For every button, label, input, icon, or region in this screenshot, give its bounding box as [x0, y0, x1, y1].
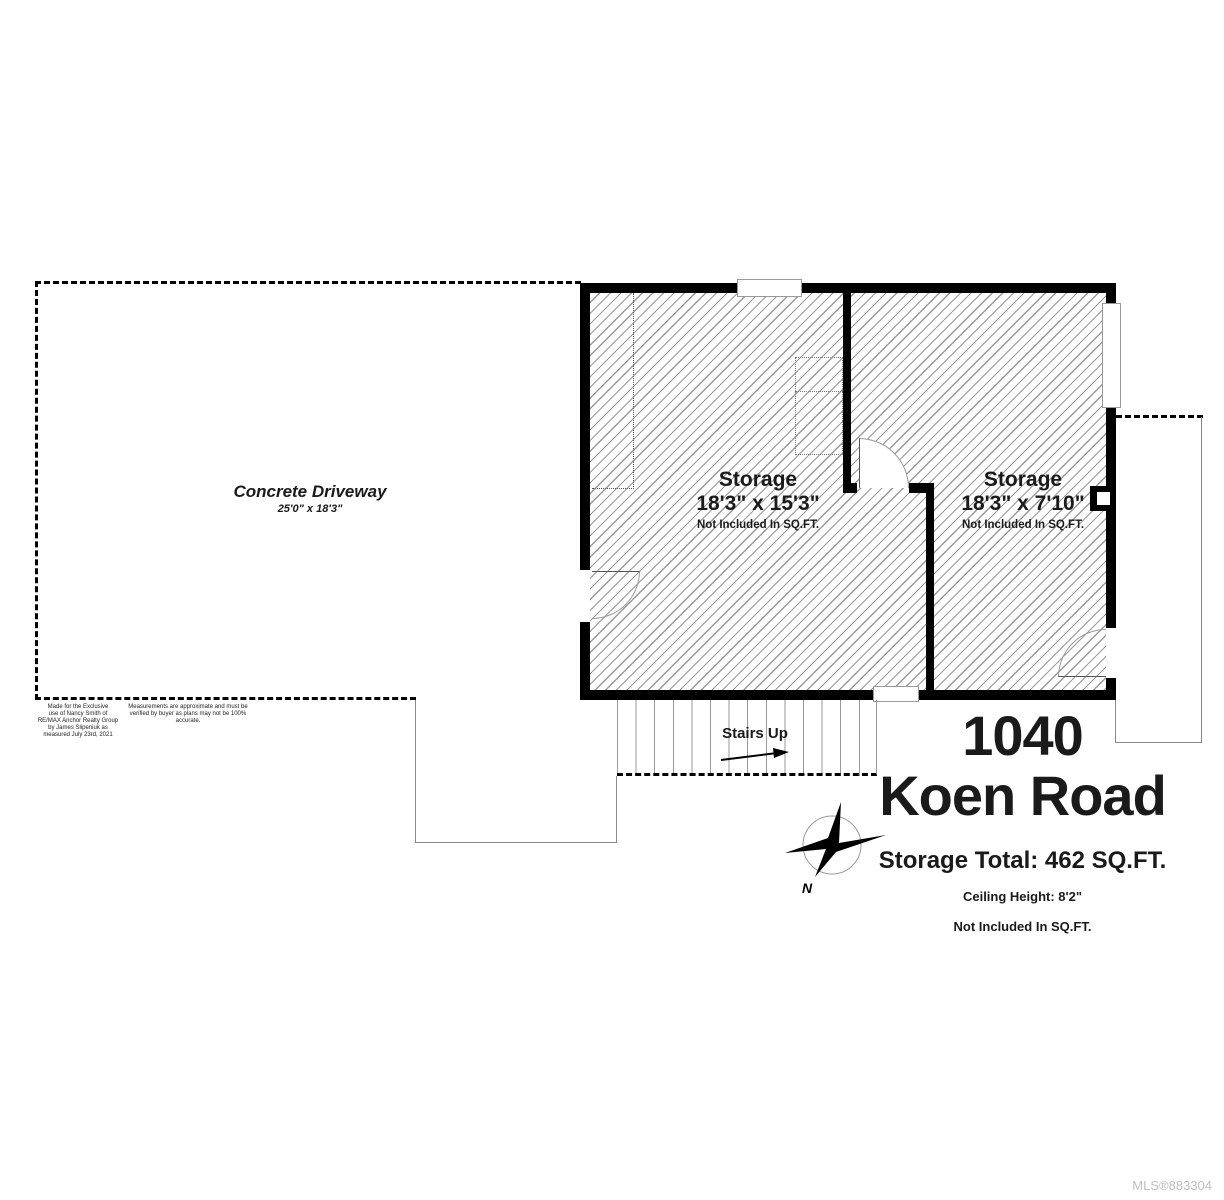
walkway-line-right [616, 776, 617, 843]
address-title: 1040 Koen Road [870, 706, 1175, 826]
room-1-dimensions: 18'3" x 15'3" [660, 492, 856, 516]
driveway-outline-bottom [35, 697, 416, 700]
stairs-direction-arrow [715, 747, 795, 765]
partition-wall-upper [843, 293, 851, 483]
address-number: 1040 [870, 706, 1175, 766]
driveway-outline-top [35, 281, 581, 284]
made-for-line-2: use of Nancy Smith of [36, 711, 120, 718]
driveway-outline-left [35, 281, 38, 700]
ceiling-height: Ceiling Height: 8'2" [900, 889, 1145, 904]
floor-plan-page: Concrete Driveway 25'0" x 18'3" Storage … [0, 0, 1224, 1200]
made-for-line-1: Made for the Exclusive [36, 704, 120, 711]
storage-room-1-label: Storage 18'3" x 15'3" Not Included In SQ… [660, 468, 856, 532]
walkway-line-left [415, 700, 416, 843]
measurement-disclaimer: Measurements are approximate and must be… [122, 704, 254, 725]
right-door-opening [1106, 628, 1116, 678]
storage-total: Storage Total: 462 SQ.FT. [850, 847, 1195, 875]
stairs-label: Stairs Up [690, 725, 820, 742]
driveway-name: Concrete Driveway [225, 482, 395, 502]
made-for-disclaimer: Made for the Exclusive use of Nancy Smit… [36, 704, 120, 739]
made-for-line-3: RE/MAX Anchor Realty Group [36, 718, 120, 725]
driveway-dimensions: 25'0" x 18'3" [225, 502, 395, 516]
bottom-door-opening [873, 686, 919, 702]
right-wall-window [1102, 303, 1121, 408]
storage-room-2-label: Storage 18'3" x 7'10" Not Included In SQ… [925, 468, 1121, 532]
walkway-line-bottom [415, 842, 617, 843]
made-for-line-4: by James Slipeniuk as [36, 725, 120, 732]
shelf-feature-divider [795, 391, 843, 392]
side-area-outline-top [1116, 415, 1203, 418]
room-2-name: Storage [925, 468, 1121, 492]
room-2-note: Not Included In SQ.FT. [925, 518, 1121, 532]
measurement-line-2: verified by buyer as plans may not be 10… [122, 711, 254, 725]
mls-number: MLS®883304 [1040, 1178, 1212, 1193]
overhead-feature-outline [592, 293, 634, 489]
shelf-feature-outline [795, 357, 843, 455]
side-area-line-right [1201, 417, 1202, 743]
sqft-note: Not Included In SQ.FT. [900, 919, 1145, 934]
driveway-label: Concrete Driveway 25'0" x 18'3" [225, 482, 395, 516]
address-street: Koen Road [870, 766, 1175, 826]
room-1-name: Storage [660, 468, 856, 492]
made-for-line-5: measured July 23rd, 2021 [36, 732, 120, 739]
room-2-dimensions: 18'3" x 7'10" [925, 492, 1121, 516]
measurement-line-1: Measurements are approximate and must be [122, 704, 254, 711]
left-door-opening [580, 570, 590, 622]
room-1-note: Not Included In SQ.FT. [660, 518, 856, 532]
compass-north-label: N [802, 880, 813, 896]
top-wall-window [737, 279, 802, 297]
